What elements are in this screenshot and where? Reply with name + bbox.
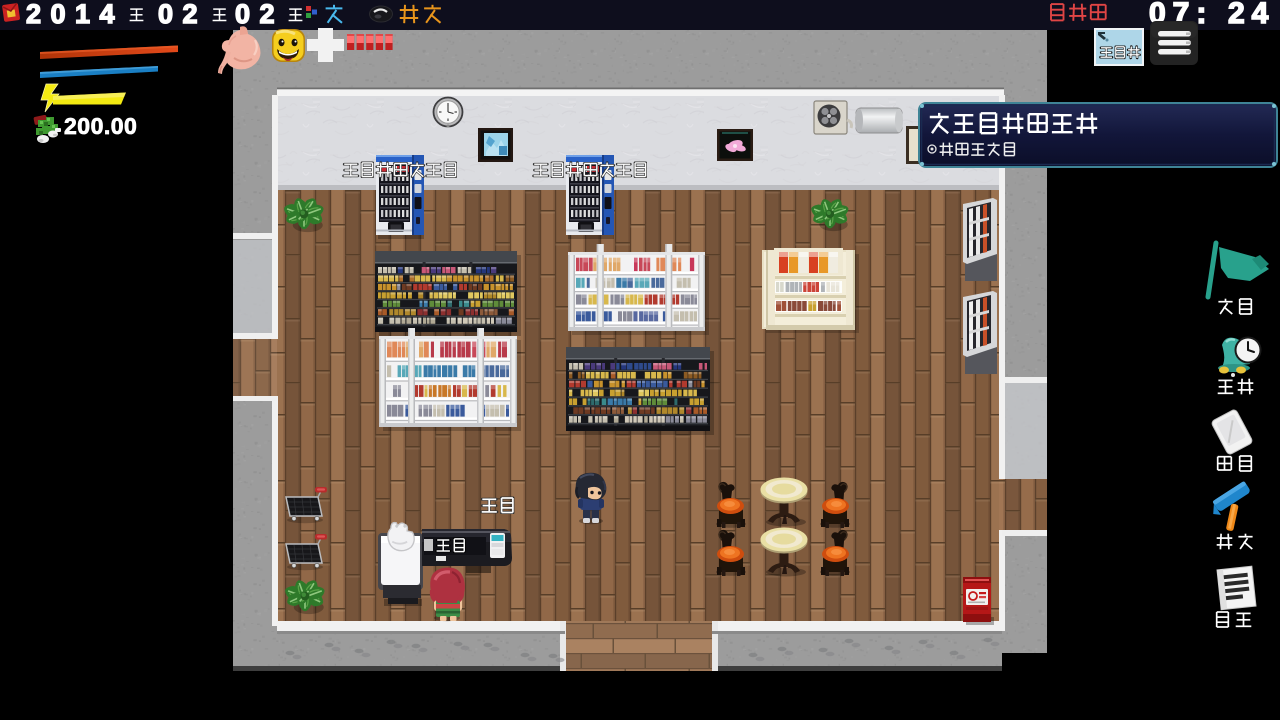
svg-text:24: 24	[1228, 0, 1275, 30]
svg-text:02: 02	[235, 0, 284, 29]
svg-text:2014: 2014	[26, 0, 124, 29]
svg-text:02: 02	[158, 0, 207, 29]
svg-text:200.00: 200.00	[64, 113, 137, 139]
